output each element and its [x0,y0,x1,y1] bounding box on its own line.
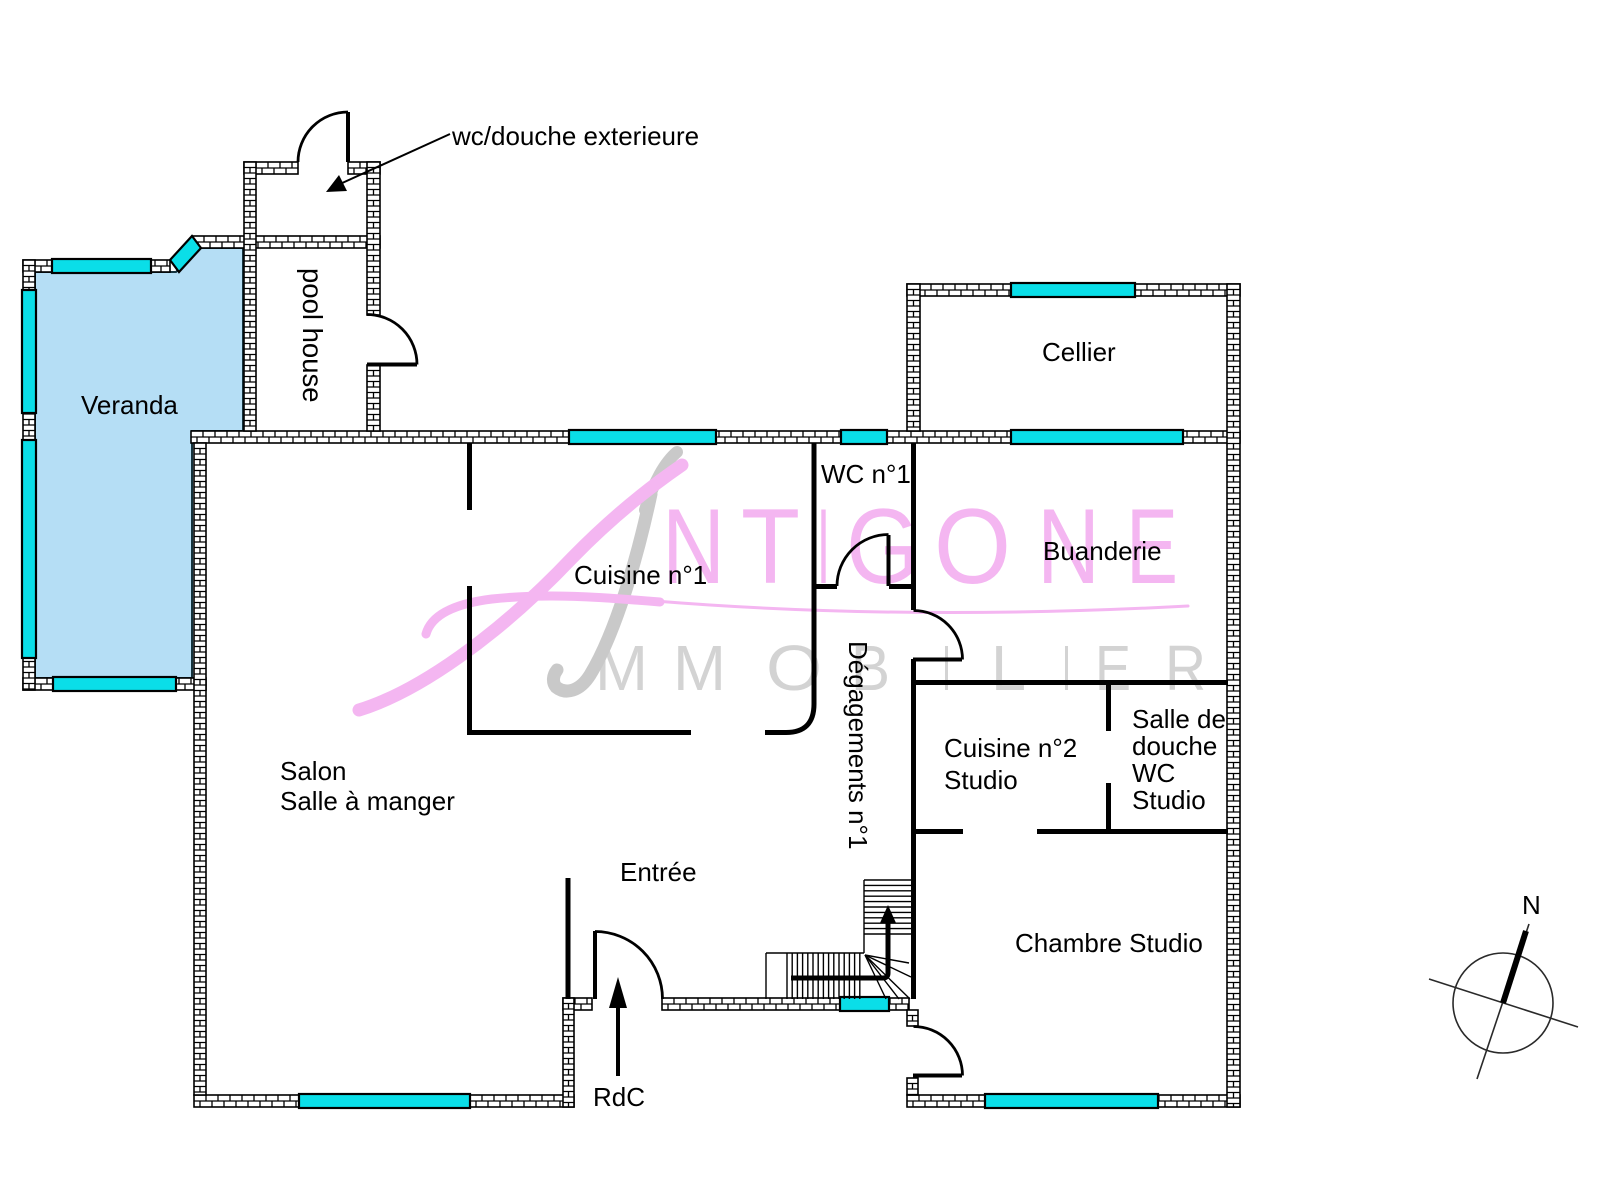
svg-text:Salle de: Salle de [1132,704,1226,734]
svg-text:Cellier: Cellier [1042,337,1116,367]
svg-text:WC n°1: WC n°1 [821,459,911,489]
svg-text:N: N [1522,890,1541,920]
svg-text:T: T [741,486,800,606]
svg-text:L: L [991,632,1026,704]
svg-text:Cuisine n°1: Cuisine n°1 [574,560,707,590]
svg-text:WC: WC [1132,758,1175,788]
svg-text:douche: douche [1132,731,1217,761]
svg-text:Veranda: Veranda [81,390,178,420]
svg-text:Salle à manger: Salle à manger [280,786,455,816]
svg-text:R: R [1165,632,1206,704]
svg-text:Entrée: Entrée [620,857,697,887]
svg-text:Chambre Studio: Chambre Studio [1015,928,1203,958]
svg-text:Salon: Salon [280,756,347,786]
svg-text:Studio: Studio [944,765,1018,795]
svg-text:M: M [673,632,726,704]
svg-text:Dégagements n°1: Dégagements n°1 [843,641,873,849]
svg-text:Cuisine n°2: Cuisine n°2 [944,733,1077,763]
svg-text:Buanderie: Buanderie [1043,536,1162,566]
svg-text:O: O [934,486,1011,606]
svg-text:wc/douche exterieure: wc/douche exterieure [451,121,699,151]
svg-text:Studio: Studio [1132,785,1206,815]
svg-text:RdC: RdC [593,1082,645,1112]
svg-text:E: E [1095,632,1131,704]
svg-text:I: I [942,632,951,704]
svg-text:pool house: pool house [297,268,328,403]
svg-text:I: I [1062,632,1071,704]
